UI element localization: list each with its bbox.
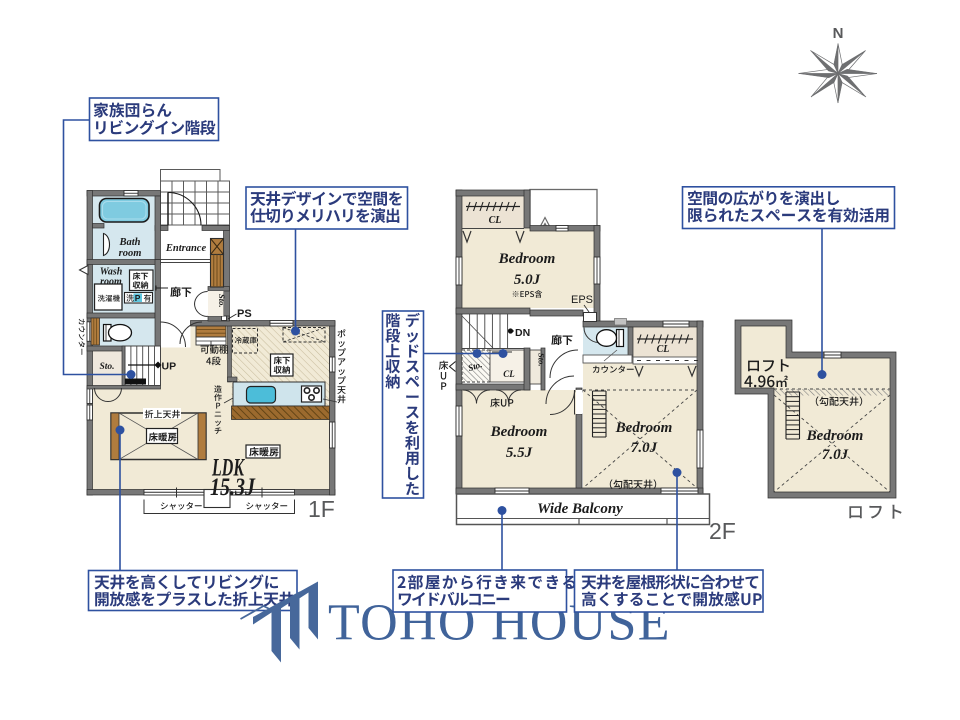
svg-text:2F: 2F <box>709 518 736 544</box>
svg-text:Bath: Bath <box>118 237 140 248</box>
svg-text:Sto.: Sto. <box>537 353 547 366</box>
svg-text:15.3J: 15.3J <box>210 472 256 501</box>
svg-text:5.5J: 5.5J <box>506 445 533 461</box>
svg-text:Entrance: Entrance <box>165 243 207 254</box>
svg-text:Wide Balcony: Wide Balcony <box>537 501 623 517</box>
svg-text:P: P <box>135 293 141 303</box>
svg-text:room: room <box>119 248 142 259</box>
svg-text:7.0J: 7.0J <box>822 447 849 463</box>
svg-text:CL: CL <box>503 369 515 379</box>
svg-text:DN: DN <box>515 327 530 339</box>
svg-text:Sto.: Sto. <box>99 362 114 372</box>
svg-text:CL: CL <box>657 344 670 355</box>
svg-text:N: N <box>833 25 844 42</box>
svg-text:PS: PS <box>237 308 252 320</box>
svg-text:5.0J: 5.0J <box>514 272 541 288</box>
svg-text:1F: 1F <box>308 496 335 522</box>
svg-text:Sto.: Sto. <box>217 294 227 307</box>
svg-text:UP: UP <box>162 361 177 373</box>
svg-text:Bedroom: Bedroom <box>615 420 673 436</box>
svg-text:7.0J: 7.0J <box>631 440 658 456</box>
svg-text:Bedroom: Bedroom <box>498 251 556 267</box>
svg-text:EPS: EPS <box>571 294 593 306</box>
svg-text:CL: CL <box>489 215 502 226</box>
svg-text:Bedroom: Bedroom <box>490 424 548 440</box>
